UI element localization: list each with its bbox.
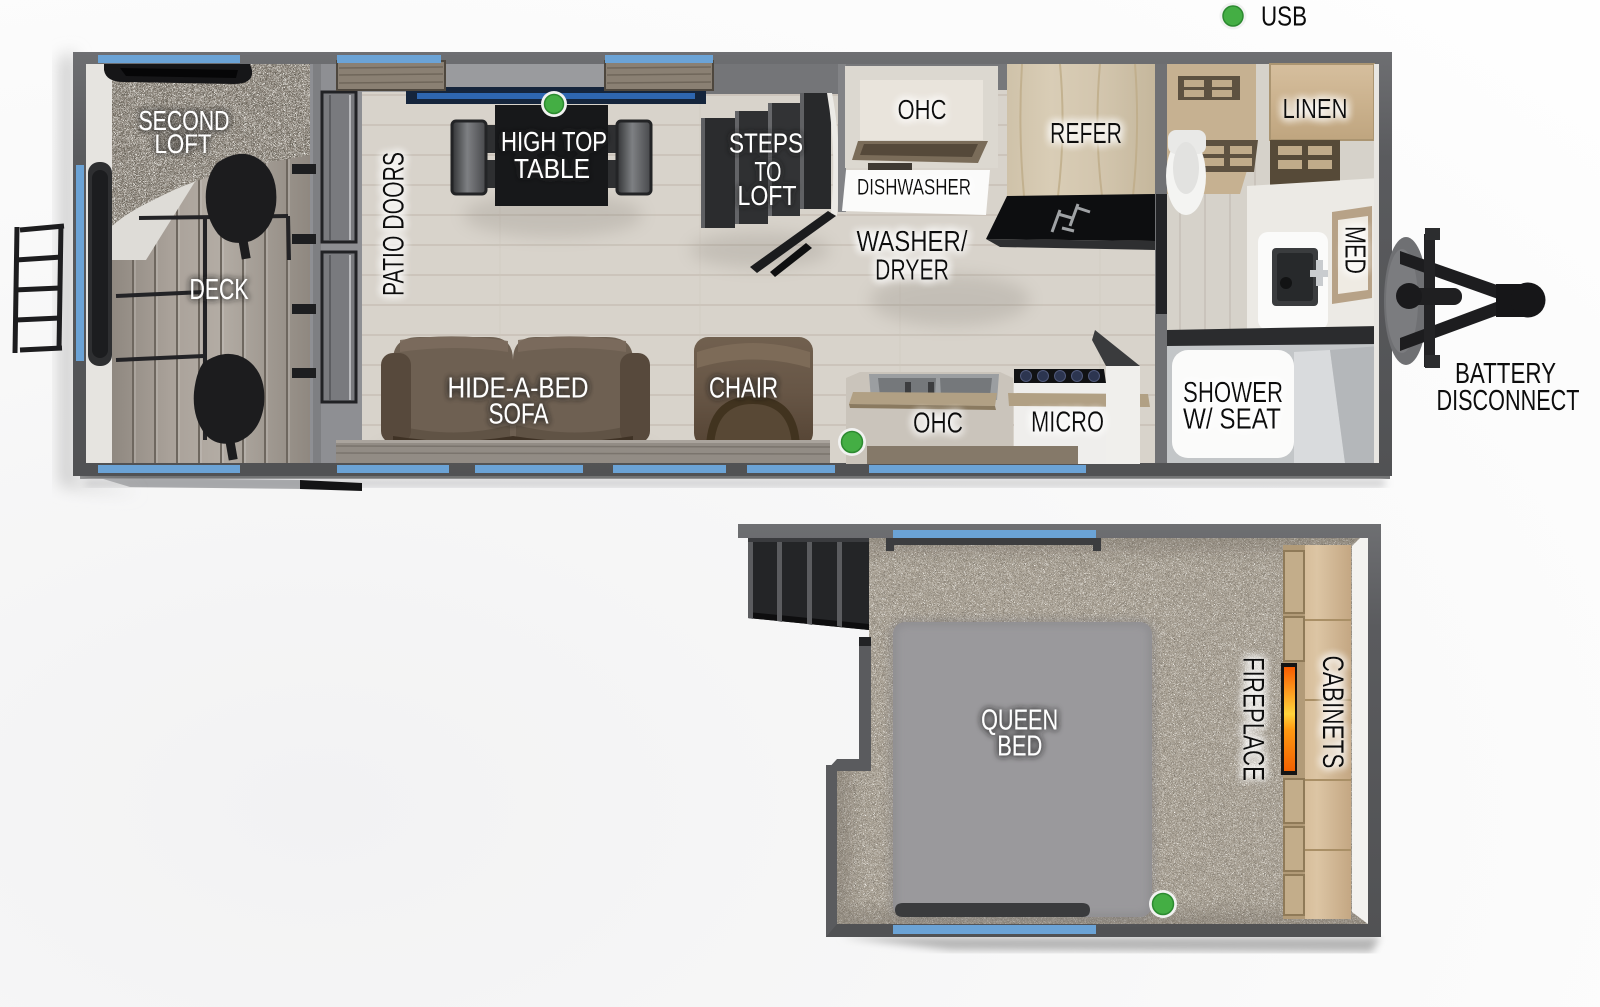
svg-text:DISCONNECT: DISCONNECT (1437, 385, 1580, 417)
svg-text:CABINETS: CABINETS (1316, 656, 1349, 769)
svg-text:TABLE: TABLE (514, 153, 590, 184)
svg-text:FIREPLACE: FIREPLACE (1237, 657, 1270, 781)
svg-text:MED: MED (1338, 226, 1370, 274)
svg-text:CHAIR: CHAIR (709, 372, 778, 404)
svg-text:STEPS: STEPS (729, 128, 803, 159)
svg-text:LOFT: LOFT (738, 180, 797, 211)
svg-text:MICRO: MICRO (1031, 407, 1104, 439)
svg-text:WASHER/: WASHER/ (857, 226, 969, 258)
svg-text:LINEN: LINEN (1283, 93, 1348, 124)
svg-text:USB: USB (1261, 1, 1307, 32)
svg-text:SOFA: SOFA (489, 398, 550, 430)
svg-text:DRYER: DRYER (875, 254, 949, 286)
svg-text:DISHWASHER: DISHWASHER (857, 174, 971, 199)
svg-text:REFER: REFER (1050, 118, 1122, 150)
svg-text:LOFT: LOFT (155, 129, 212, 159)
svg-text:W/ SEAT: W/ SEAT (1183, 404, 1281, 436)
svg-text:OHC: OHC (913, 407, 963, 439)
svg-text:OHC: OHC (898, 94, 947, 125)
svg-text:BED: BED (997, 731, 1042, 763)
svg-text:PATIO DOORS: PATIO DOORS (378, 152, 411, 296)
svg-text:DECK: DECK (190, 274, 249, 306)
